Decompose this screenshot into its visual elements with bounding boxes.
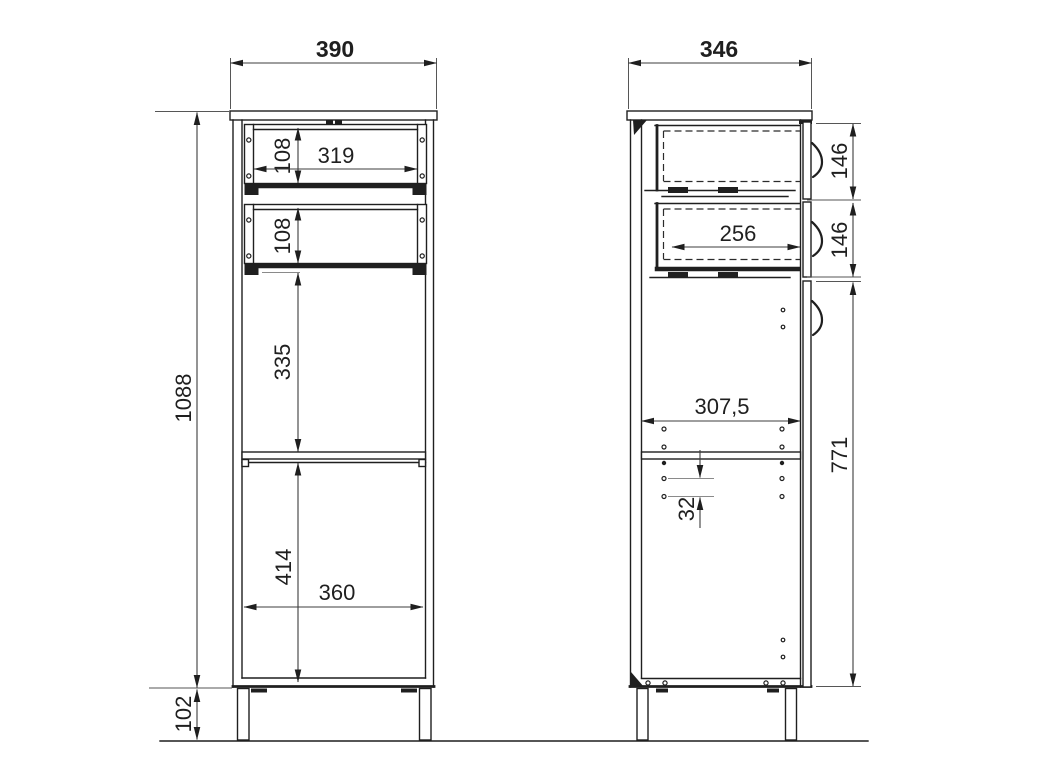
dim-label-drawer2-front: 146 [827, 222, 852, 259]
drawer1-rail-block [718, 187, 738, 193]
front-legs [238, 689, 432, 741]
shelf-pin-hole [780, 445, 784, 449]
dim-label-total-width: 390 [316, 36, 354, 62]
side-fronts [781, 122, 822, 687]
side-drawer-1 [645, 126, 800, 197]
shelf-bracket-left [242, 460, 249, 467]
hinge-hole [781, 308, 785, 312]
hinge-hole [781, 655, 785, 659]
side-shelf [642, 427, 801, 499]
dim-label-drawer2-height: 108 [270, 218, 295, 255]
dim-label-leg-height: 102 [171, 696, 196, 733]
dim-label-total-height: 1088 [171, 374, 196, 423]
front-right-leg [420, 689, 432, 741]
side-legs [637, 689, 797, 741]
screw-hole [420, 254, 424, 258]
screw-hole [420, 138, 424, 142]
leg-plate [767, 689, 779, 693]
screw-hole [247, 218, 251, 222]
dim-total-height: 1088 [149, 112, 232, 689]
shelf-pin-hole [662, 445, 666, 449]
drawer1-handle [812, 143, 822, 177]
door-handle [812, 301, 822, 335]
shelf-pin-hole [662, 495, 666, 499]
dim-label-drawer-inner-depth: 256 [720, 221, 757, 246]
dim-total-width: 390 [231, 36, 437, 109]
bottom-screw-hole [764, 681, 768, 685]
dim-hole-pitch: 32 [668, 450, 714, 528]
shelf-pin [780, 461, 784, 465]
drawer2-slide-left [245, 264, 259, 275]
bottom-screw-hole [646, 681, 650, 685]
leg-plate [251, 689, 267, 693]
screw-hole [420, 218, 424, 222]
drawer2-slide-right [413, 264, 427, 275]
dim-leg-height: 102 [171, 690, 197, 740]
drawer1-rail-block [668, 187, 688, 193]
dim-drawer2-front: 146 [807, 203, 861, 277]
shelf-pin-hole [662, 427, 666, 431]
dim-label-drawer1-front: 146 [827, 143, 852, 180]
front-view: 390 1088 102 108 319 108 [149, 36, 437, 740]
dim-door-side-height: 771 [816, 282, 861, 687]
side-view: 346 146 146 771 256 [627, 36, 861, 740]
side-drawer2-face [803, 202, 811, 277]
dim-open-section: 335 [262, 273, 300, 452]
shelf-board-side [642, 452, 801, 459]
dim-drawer1-front: 146 [807, 124, 861, 201]
drawing-canvas: 390 1088 102 108 319 108 [0, 0, 1045, 784]
side-left-leg [637, 689, 648, 741]
dim-label-inner-depth: 307,5 [694, 394, 749, 419]
side-drawer1-face [803, 122, 811, 199]
shelf-pin-hole [662, 477, 666, 481]
dim-label-drawer1-inner-width: 319 [318, 143, 355, 168]
shelf-board [242, 452, 426, 459]
shelf-pin-hole [780, 495, 784, 499]
shelf-pin-hole [780, 477, 784, 481]
bottom-screw-hole [781, 681, 785, 685]
side-top-panel [627, 111, 812, 120]
corner-bracket-top [633, 120, 647, 135]
dim-lower-section: 414 [271, 463, 298, 682]
screw-hole [247, 138, 251, 142]
drawer2-handle [812, 222, 822, 256]
side-right-leg [786, 689, 797, 741]
dim-label-total-depth: 346 [700, 36, 738, 62]
front-left-leg [238, 689, 250, 741]
technical-drawing-page: 390 1088 102 108 319 108 [0, 0, 1045, 784]
dim-inner-depth: 307,5 [642, 394, 801, 421]
leg-plate [401, 689, 417, 693]
screw-hole [420, 174, 424, 178]
hinge-hole [781, 325, 785, 329]
shelf-pin [662, 461, 666, 465]
screw-hole [247, 174, 251, 178]
dim-label-hole-pitch: 32 [674, 497, 699, 521]
front-top-panel [230, 111, 437, 120]
dim-label-lower-section: 414 [271, 549, 296, 586]
hinge-hole [781, 638, 785, 642]
drawer1-slide-right [413, 184, 427, 195]
dim-label-inner-width: 360 [319, 580, 356, 605]
dim-label-door-side-height: 771 [827, 437, 852, 474]
shelf-bracket-right [419, 460, 426, 467]
screw-hole [247, 254, 251, 258]
side-door-face [803, 281, 811, 687]
bottom-screw-hole [663, 681, 667, 685]
top-clip-detail [335, 120, 342, 124]
drawer1-slide-left [245, 184, 259, 195]
dim-drawer-inner-depth: 256 [672, 221, 800, 247]
shelf-pin-hole [780, 427, 784, 431]
front-shelf [242, 452, 426, 467]
leg-plate [656, 689, 668, 693]
dim-total-depth: 346 [629, 36, 812, 109]
dim-label-open-section: 335 [270, 344, 295, 381]
